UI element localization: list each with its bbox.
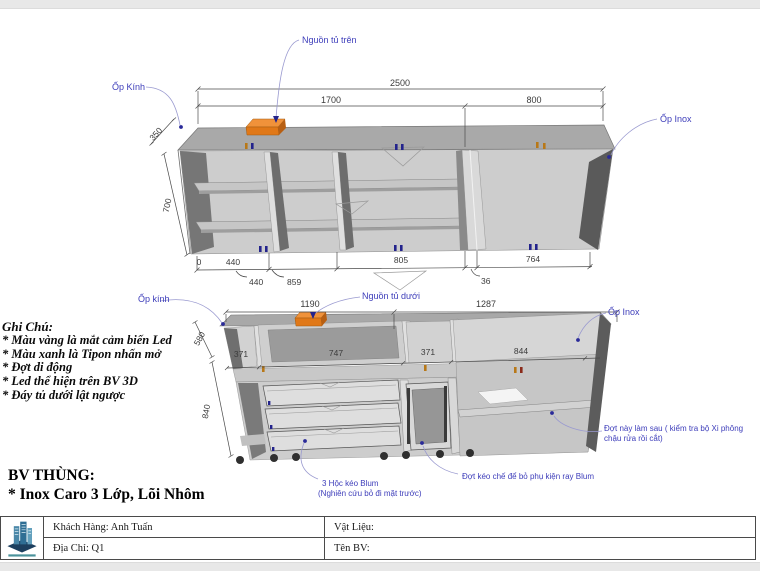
blum-drawers <box>263 380 401 451</box>
upper-power-box <box>246 119 286 135</box>
notes-block: Ghi Chú: * Màu vàng là mắt cảm biến Led … <box>2 320 172 403</box>
note-line: * Màu vàng là mắt cảm biến Led <box>2 334 172 348</box>
title-block-table: Khách Hàng: Anh Tuấn Vật Liệu: Địa Chỉ: … <box>0 516 756 560</box>
shelf-note-line1: Đợt này làm sau ( kiểm tra bộ Xi phông <box>604 424 743 433</box>
upper-dim-b2: 805 <box>394 255 408 265</box>
address-field: Địa Chỉ: Q1 <box>44 538 325 559</box>
lower-dim-w4: 844 <box>514 346 528 356</box>
heading-line2: * Inox Caro 3 Lớp, Lõi Nhôm <box>8 485 204 504</box>
upper-cabinet-drawing: 2500 1700 800 350 700 0 440 805 764 440 … <box>112 35 692 290</box>
upper-dim-right: 800 <box>526 95 541 105</box>
building-logo-icon <box>4 518 40 558</box>
lower-label-power: Nguồn tủ dưới <box>362 291 420 301</box>
drawing-name-field: Tên BV: <box>325 538 755 559</box>
rail-note: Đợt kéo chế để bỏ phụ kiện ray Blum <box>462 472 594 481</box>
lower-label-glass: Ốp kính <box>138 293 170 304</box>
lower-dim-left: 1190 <box>300 299 319 309</box>
drawer-note-line2: (Nghiên cứu bỏ đi mặt trước) <box>318 489 422 498</box>
upper-label-power: Nguồn tủ trên <box>302 35 357 45</box>
pullout-rail-unit <box>406 382 451 450</box>
lower-dim-w2: 747 <box>329 348 343 358</box>
lower-dim-h-bottom: 840 <box>200 403 212 419</box>
drawing-heading: BV THÙNG: * Inox Caro 3 Lớp, Lõi Nhôm <box>8 466 204 504</box>
lower-cabinet-drawing: 1190 1287 371 747 371 844 580 840 Ốp kín… <box>138 291 743 498</box>
upper-dim-depth: 350 <box>147 125 164 142</box>
upper-dim-zero: 0 <box>197 257 202 267</box>
note-line: * Đợt di động <box>2 361 172 375</box>
note-line: * Led thể hiện trên BV 3D <box>2 375 172 389</box>
door-swing-triangle <box>374 271 426 290</box>
upper-dim-r2b: 859 <box>287 277 301 287</box>
upper-label-glass: Ốp Kính <box>112 81 145 92</box>
lower-top-far-right-section <box>453 313 606 362</box>
upper-dim-r2a: 440 <box>249 277 263 287</box>
note-line: * Đáy tủ dưới lật ngược <box>2 389 172 403</box>
upper-dim-height: 700 <box>161 197 174 213</box>
company-logo <box>1 517 44 559</box>
drawer-note-line1: 3 Hộc kéo Blum <box>322 479 379 488</box>
heading-line1: BV THÙNG: <box>8 466 204 485</box>
customer-field: Khách Hàng: Anh Tuấn <box>44 517 325 538</box>
lower-dim-right: 1287 <box>476 299 496 309</box>
lower-label-inox: Ốp Inox <box>608 306 640 317</box>
lower-dim-h-top: 580 <box>192 330 208 347</box>
notes-title: Ghi Chú: <box>2 320 172 334</box>
upper-dim-left: 1700 <box>321 95 341 105</box>
upper-dim-b1: 440 <box>226 257 240 267</box>
material-field: Vật Liệu: <box>325 517 755 538</box>
note-line: * Màu xanh là Tipon nhấn mở <box>2 348 172 362</box>
lower-dim-w3: 371 <box>421 347 435 357</box>
lower-dim-w1: 371 <box>234 349 248 359</box>
upper-dim-overall: 2500 <box>390 78 410 88</box>
shelf-note-line2: chậu rửa rồi cắt) <box>604 434 663 443</box>
upper-dim-b3: 764 <box>526 254 540 264</box>
upper-dim-r2c: 36 <box>481 276 491 286</box>
upper-back-wall <box>180 149 613 254</box>
upper-label-inox: Ốp Inox <box>660 113 692 124</box>
